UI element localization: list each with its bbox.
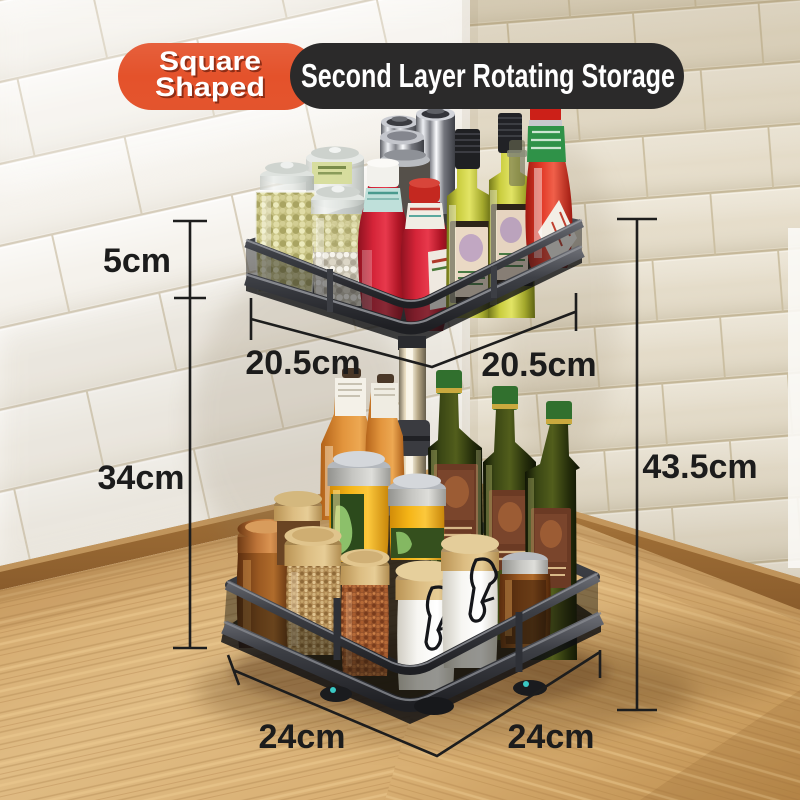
svg-text:5cm: 5cm [103, 242, 171, 280]
svg-text:24cm: 24cm [259, 718, 346, 756]
svg-text:43.5cm: 43.5cm [642, 448, 757, 486]
svg-text:34cm: 34cm [98, 459, 185, 497]
svg-text:Shaped: Shaped [155, 72, 265, 102]
svg-text:20.5cm: 20.5cm [481, 346, 596, 384]
svg-text:20.5cm: 20.5cm [245, 344, 360, 382]
svg-text:24cm: 24cm [508, 718, 595, 756]
svg-text:Second Layer Rotating Storage: Second Layer Rotating Storage [301, 57, 675, 94]
